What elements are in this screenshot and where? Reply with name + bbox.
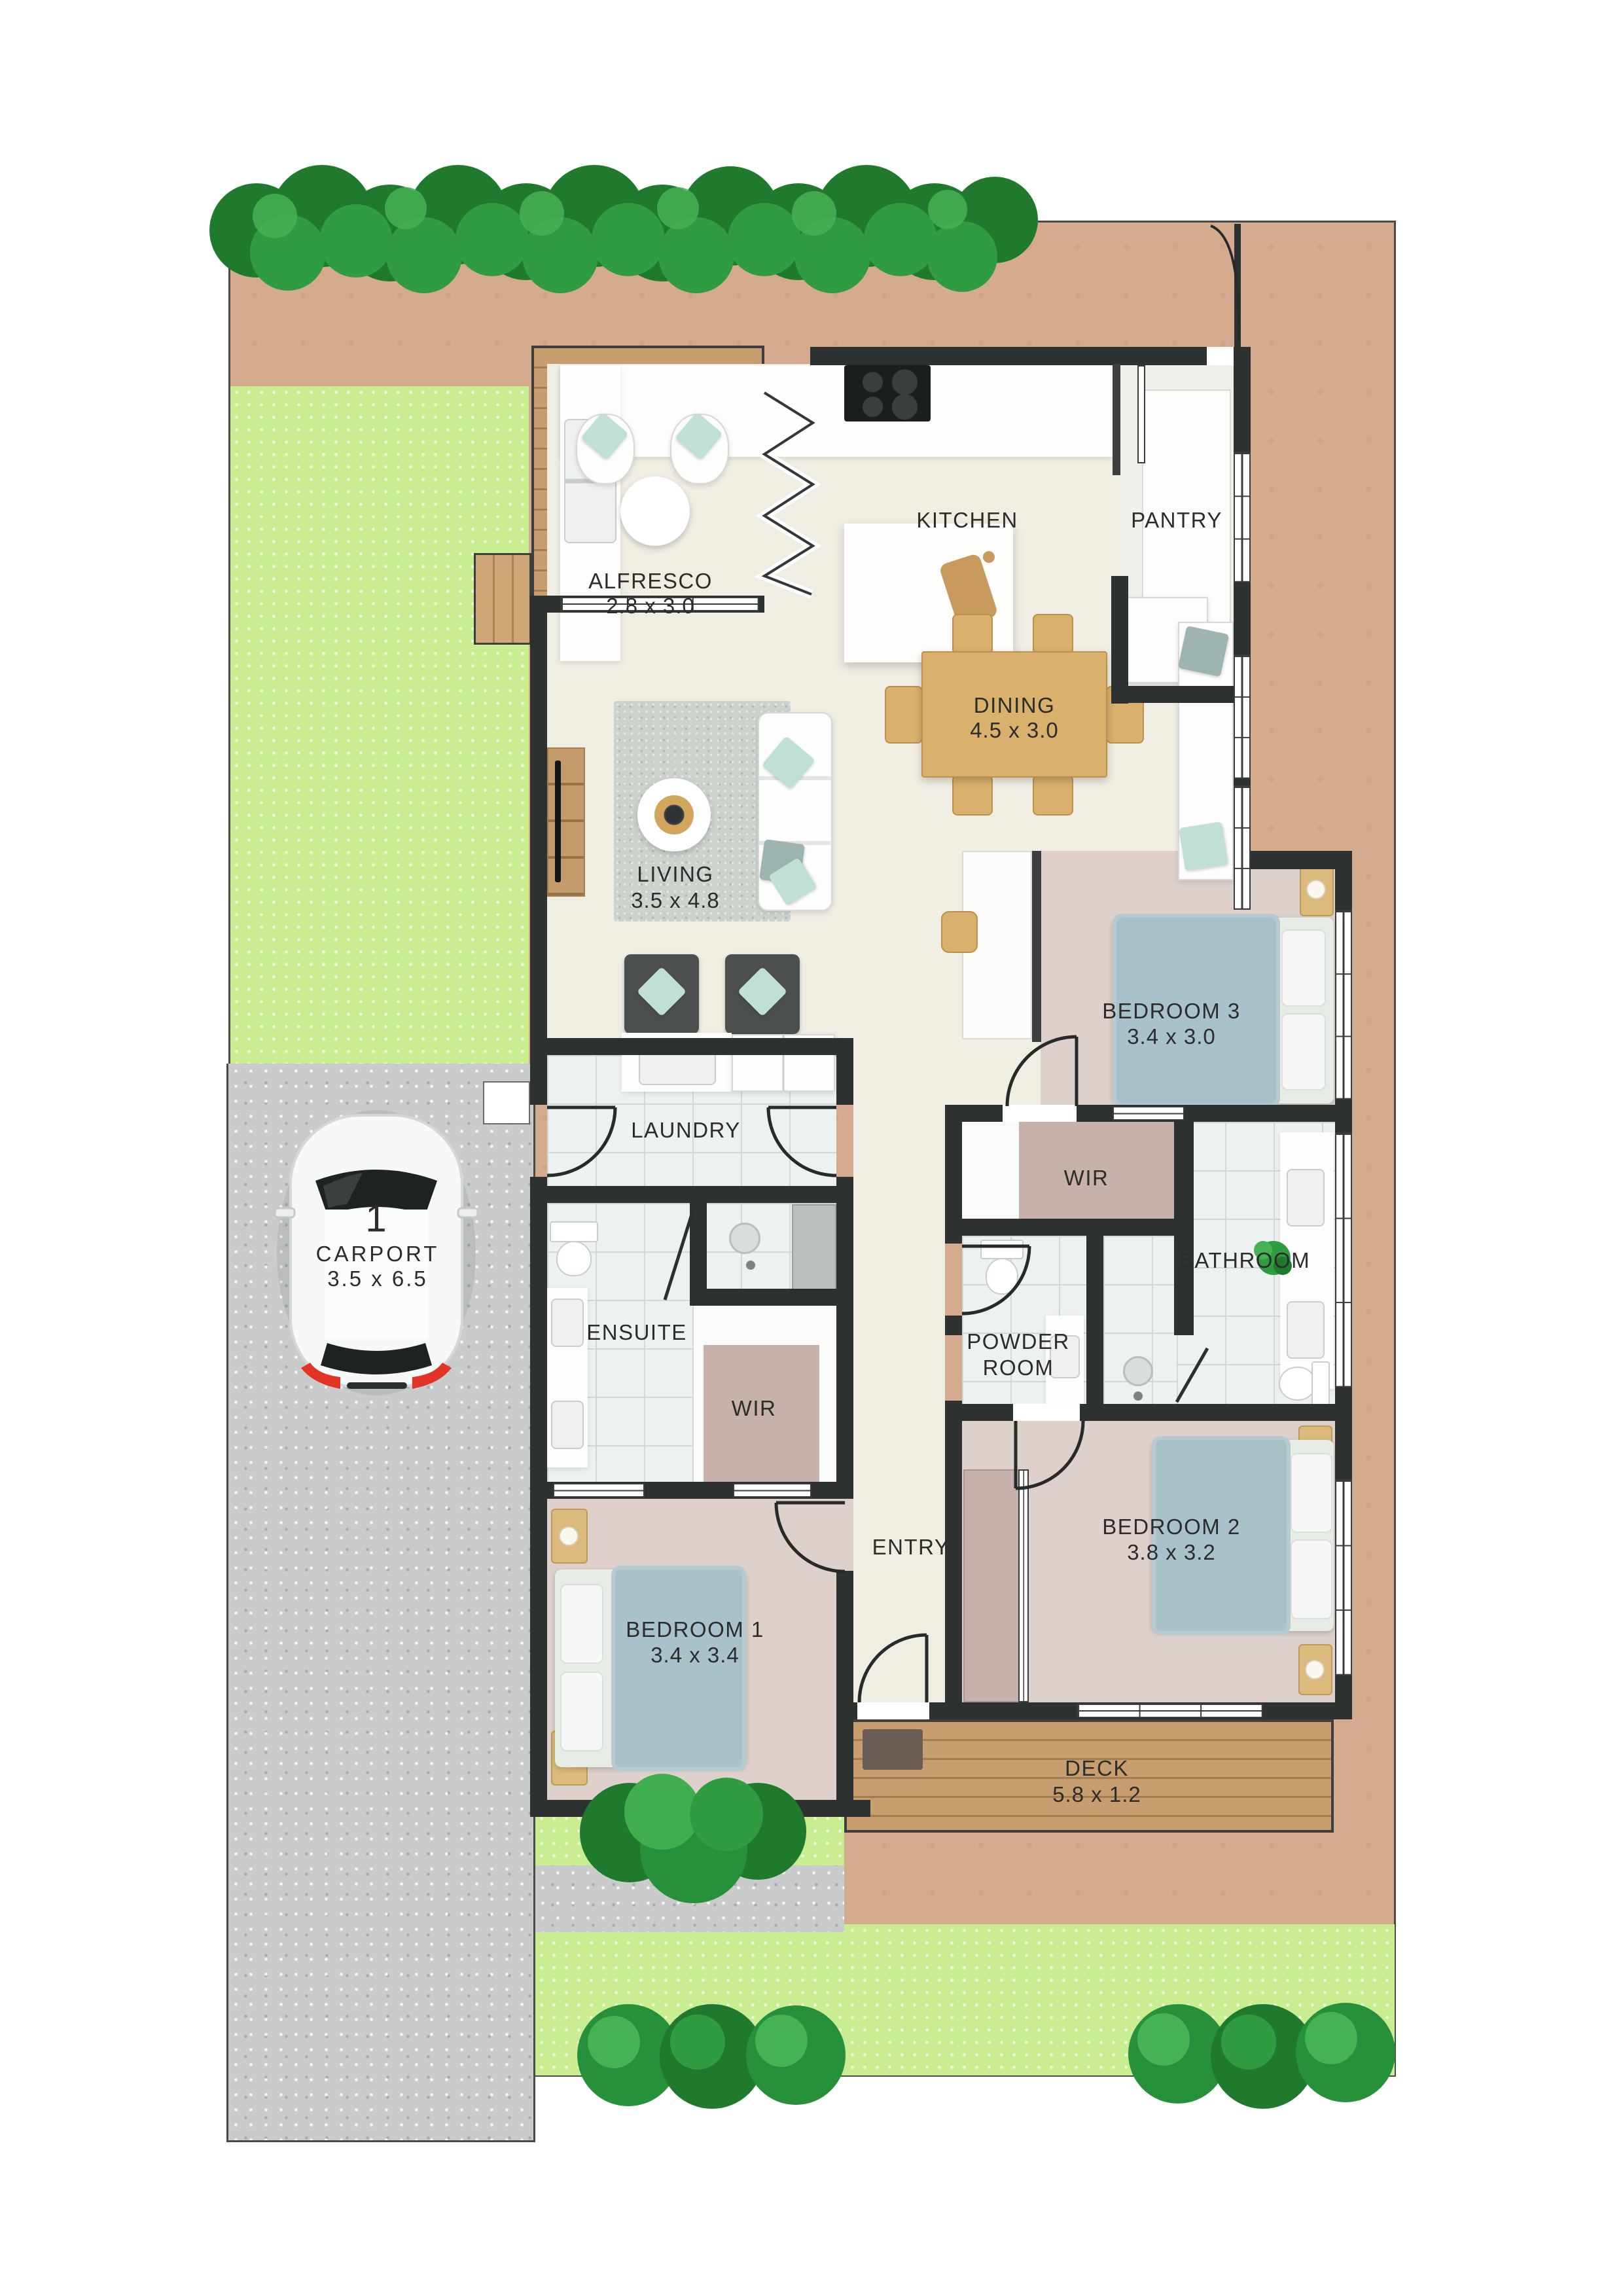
bed1 xyxy=(555,1570,746,1767)
ensuite-shower-head xyxy=(729,1223,760,1254)
ensuite-toilet-bowl xyxy=(556,1241,592,1276)
ensuite-basin xyxy=(551,1299,584,1347)
ensuite-toilet-tank xyxy=(550,1221,598,1242)
bathroom-shower-drain xyxy=(1133,1391,1143,1401)
bedroom1-rear-window xyxy=(589,1801,779,1816)
bedside-lamp xyxy=(1306,880,1326,899)
deck-label: DECK xyxy=(1065,1756,1129,1781)
wall xyxy=(810,347,1251,365)
wir-bed3-label: WIR xyxy=(1064,1166,1109,1191)
dining-dims: 4.5 x 3.0 xyxy=(970,718,1059,743)
bedside-lamp xyxy=(1305,1660,1325,1679)
living-label: LIVING xyxy=(637,862,713,887)
bathroom-window xyxy=(1335,1132,1352,1388)
dining-chair xyxy=(952,775,993,816)
dining-window xyxy=(1234,785,1251,910)
wall xyxy=(530,1177,547,1817)
powder-toilet-tank xyxy=(980,1240,1024,1259)
bedroom1-dims: 3.4 x 3.4 xyxy=(651,1643,740,1668)
wall xyxy=(1113,364,1120,475)
alfresco-label: ALFRESCO xyxy=(588,569,713,594)
ensuite-shower-drain xyxy=(746,1261,755,1270)
bedroom3-window xyxy=(1335,910,1352,1100)
wall xyxy=(1111,576,1128,704)
laundry-label: LAUNDRY xyxy=(631,1118,741,1143)
wall xyxy=(690,1289,836,1306)
dining-chair xyxy=(1033,775,1073,816)
wall xyxy=(836,1571,853,1800)
wall xyxy=(1032,851,1041,1042)
front-lawn-strip xyxy=(535,1924,1395,2075)
wall xyxy=(1234,851,1352,869)
study-nook-stool xyxy=(941,911,978,953)
bedroom3-dims: 3.4 x 3.0 xyxy=(1127,1024,1216,1049)
laundry-step xyxy=(483,1081,530,1124)
powder-toilet-bowl xyxy=(986,1258,1018,1295)
bathroom-shower-head xyxy=(1123,1356,1153,1386)
dining-label: DINING xyxy=(974,693,1056,718)
bedroom2-robe-slider xyxy=(1018,1469,1029,1702)
wir-bed3-slider xyxy=(1113,1106,1185,1121)
entry-label: ENTRY xyxy=(872,1535,950,1560)
bedroom3-label: BEDROOM 3 xyxy=(1102,999,1241,1024)
floorplan-canvas: ALFRESCO 2.8 x 3.0 KITCHEN PANTRY DINING… xyxy=(0,0,1623,2296)
bedroom1-label: BEDROOM 1 xyxy=(626,1617,764,1642)
bed1-ensuite-slider xyxy=(553,1483,645,1498)
powder-label: POWDER ROOM xyxy=(946,1329,1090,1381)
wall xyxy=(1174,1122,1194,1335)
bedroom3-door-opening xyxy=(1003,1105,1077,1122)
carport-dims: 3.5 x 6.5 xyxy=(327,1266,428,1291)
bedroom2-window xyxy=(1335,1479,1352,1676)
wall xyxy=(530,1038,853,1055)
bedside-lamp xyxy=(559,1526,579,1546)
pantry-label: PANTRY xyxy=(1131,508,1222,533)
bathroom-basin xyxy=(1287,1301,1325,1359)
dining-chair xyxy=(885,686,923,744)
bathroom-toilet-bowl xyxy=(1279,1367,1315,1401)
bathroom-label: BATHROOM xyxy=(1179,1248,1310,1273)
wall xyxy=(530,596,547,1055)
wall xyxy=(836,1055,853,1105)
seat-cushion xyxy=(1178,626,1229,677)
living-dims: 3.5 x 4.8 xyxy=(631,888,720,913)
carport-label: CARPORT xyxy=(316,1242,440,1266)
backyard-lawn xyxy=(230,386,529,1064)
ensuite-basin xyxy=(551,1401,584,1449)
bedroom2-dims: 3.8 x 3.2 xyxy=(1127,1540,1216,1565)
wall xyxy=(1234,224,1241,348)
alfresco-dims: 2.8 x 3.0 xyxy=(606,594,695,619)
gate-opening xyxy=(1207,347,1237,365)
bedroom2-door-opening xyxy=(1013,1404,1080,1421)
tv-unit xyxy=(547,747,585,897)
coffee-table-bowl xyxy=(654,795,694,834)
kitchen-bench-top xyxy=(560,365,1113,457)
bathroom-basin xyxy=(1287,1169,1325,1227)
bed1-wir-slider xyxy=(733,1483,811,1498)
bedroom2-label: BEDROOM 2 xyxy=(1102,1515,1241,1539)
bedroom2-robe xyxy=(963,1469,1020,1702)
ensuite-label: ENSUITE xyxy=(586,1320,687,1345)
wall xyxy=(962,1219,1174,1236)
cutting-board-handle xyxy=(983,551,995,563)
bedroom2-rear-window xyxy=(1077,1704,1263,1718)
dining-chair xyxy=(1033,614,1073,655)
outdoor-table xyxy=(620,476,690,546)
entry-path xyxy=(535,1865,844,1932)
deck-dims: 5.8 x 1.2 xyxy=(1052,1782,1141,1807)
wall xyxy=(836,1177,853,1499)
alfresco-side-step xyxy=(474,553,531,645)
wall xyxy=(945,1404,1352,1421)
entry-door-opening xyxy=(857,1702,929,1719)
cooktop xyxy=(844,365,931,422)
tv-screen xyxy=(555,761,561,882)
dining-chair xyxy=(952,614,993,655)
pantry-window xyxy=(1234,452,1251,583)
bathroom-toilet-tank xyxy=(1311,1361,1330,1407)
wall xyxy=(547,1186,836,1203)
door-mat xyxy=(863,1729,923,1770)
kitchen-label: KITCHEN xyxy=(916,508,1018,533)
wir-bed1-label: WIR xyxy=(732,1396,777,1421)
seat-cushion xyxy=(1179,821,1228,871)
carport-bay-number: 1 xyxy=(365,1197,387,1241)
hallway-floor xyxy=(853,1055,945,1719)
wall xyxy=(1111,686,1251,703)
dining-window xyxy=(1234,655,1251,779)
wall xyxy=(530,1055,547,1105)
pantry-door-leaf xyxy=(1137,365,1145,463)
wall xyxy=(945,1122,962,1244)
